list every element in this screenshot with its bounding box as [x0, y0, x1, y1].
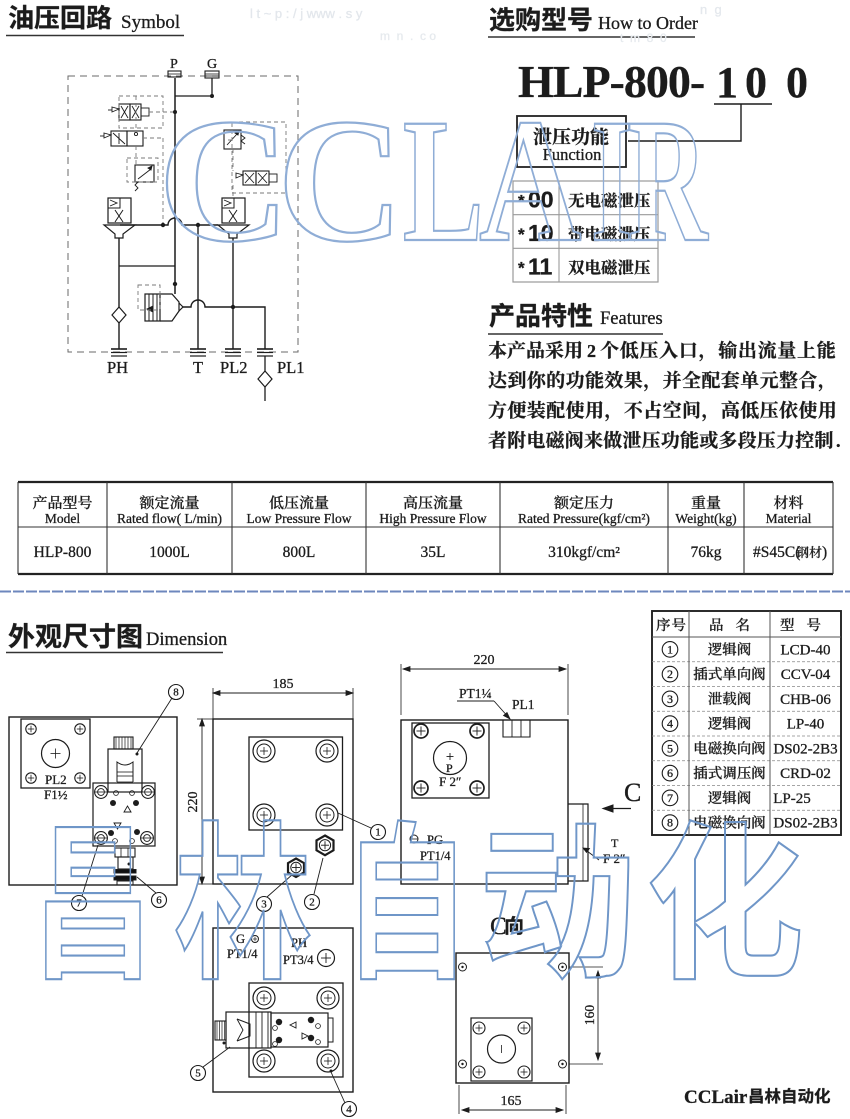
svg-text:How to Order: How to Order	[598, 13, 698, 33]
svg-text:): )	[822, 544, 827, 561]
svg-text:T: T	[193, 358, 203, 377]
svg-text:160: 160	[582, 1005, 597, 1026]
svg-text:G: G	[207, 57, 217, 72]
svg-text:Model: Model	[45, 511, 80, 526]
svg-text:PG: PG	[427, 833, 443, 847]
svg-text:1000L: 1000L	[149, 544, 189, 561]
svg-text:35L: 35L	[421, 544, 446, 561]
svg-text:8: 8	[667, 816, 673, 830]
svg-text:2: 2	[309, 897, 315, 909]
svg-text:Material: Material	[766, 511, 812, 526]
svg-text:High Pressure Flow: High Pressure Flow	[379, 511, 486, 526]
svg-text:PT1¼: PT1¼	[459, 686, 492, 701]
svg-text:165: 165	[501, 1094, 522, 1109]
svg-text:2: 2	[587, 341, 596, 361]
svg-text:PH: PH	[107, 358, 128, 377]
svg-text:220: 220	[474, 653, 495, 668]
svg-text:Dimension: Dimension	[146, 630, 227, 650]
svg-text:m n . c o: m n . c o	[380, 29, 436, 43]
svg-text:C: C	[624, 778, 641, 807]
svg-text:3: 3	[261, 899, 267, 911]
svg-text:Features: Features	[600, 309, 663, 329]
svg-text:T: T	[611, 836, 619, 850]
svg-text:PT1/4: PT1/4	[420, 849, 451, 863]
svg-text:8: 8	[173, 687, 179, 699]
svg-text:F1½: F1½	[44, 787, 68, 802]
svg-text:1: 1	[375, 827, 381, 839]
svg-text:P: P	[446, 761, 453, 775]
svg-text:310kgf/cm²: 310kgf/cm²	[548, 544, 620, 561]
svg-text:6: 6	[156, 895, 162, 907]
svg-text:6: 6	[667, 766, 673, 780]
svg-text:220: 220	[186, 792, 201, 813]
svg-text:CCV-04: CCV-04	[781, 667, 831, 683]
svg-text:DS02-2B3: DS02-2B3	[773, 741, 837, 757]
svg-text:5: 5	[667, 741, 673, 755]
svg-text:3: 3	[667, 692, 673, 706]
svg-text:A: A	[479, 82, 581, 279]
svg-text:F 2″: F 2″	[439, 774, 461, 789]
svg-text:0: 0	[786, 58, 808, 107]
svg-text:LCD-40: LCD-40	[781, 642, 831, 658]
svg-text:7: 7	[667, 791, 673, 805]
svg-text:LP-40: LP-40	[787, 717, 825, 733]
svg-text:LP-25: LP-25	[773, 791, 811, 807]
svg-text:76kg: 76kg	[691, 544, 722, 561]
svg-text:4: 4	[346, 1104, 352, 1116]
svg-text:.: .	[836, 431, 841, 451]
svg-text:PL2: PL2	[220, 358, 248, 377]
svg-text:PT3/4: PT3/4	[283, 953, 314, 967]
svg-text:Rated Pressure(kgf/cm²): Rated Pressure(kgf/cm²)	[518, 511, 650, 526]
svg-text:l t ~ p : / j www . s y: l t ~ p : / j www . s y	[250, 6, 363, 21]
svg-text:CCLair: CCLair	[684, 1087, 748, 1108]
svg-text:7: 7	[76, 898, 82, 910]
svg-text:R: R	[628, 81, 709, 278]
svg-text:Low Pressure Flow: Low Pressure Flow	[247, 511, 352, 526]
svg-text:Rated flow( L/min): Rated flow( L/min)	[117, 511, 222, 526]
svg-text:PT1/4: PT1/4	[227, 947, 258, 961]
svg-text:I: I	[591, 82, 632, 279]
svg-text:CHB-06: CHB-06	[780, 692, 831, 708]
svg-text:185: 185	[273, 677, 294, 692]
svg-text:G: G	[236, 932, 245, 946]
svg-text:0: 0	[745, 58, 767, 107]
svg-text:HLP-800: HLP-800	[34, 544, 92, 561]
svg-text:L: L	[403, 81, 484, 278]
svg-text:4: 4	[667, 717, 673, 731]
svg-text:CRD-02: CRD-02	[780, 766, 831, 782]
svg-text:t m 8 0: t m 8 0	[620, 31, 667, 45]
svg-text:PL2: PL2	[45, 772, 67, 787]
svg-text:5: 5	[195, 1068, 201, 1080]
svg-text:P: P	[170, 57, 178, 72]
svg-text:DS02-2B3: DS02-2B3	[773, 816, 837, 832]
svg-text:800L: 800L	[283, 544, 316, 561]
svg-text:1: 1	[716, 58, 738, 107]
svg-text:C: C	[277, 83, 403, 279]
svg-text:Weight(kg): Weight(kg)	[675, 511, 736, 526]
svg-text:PL1: PL1	[277, 358, 305, 377]
svg-text:n g: n g	[700, 2, 722, 17]
svg-text:1: 1	[667, 642, 673, 656]
svg-text:C: C	[158, 83, 290, 280]
svg-text:Symbol: Symbol	[121, 12, 180, 33]
svg-text:2: 2	[667, 667, 673, 681]
svg-text:#S45C(: #S45C(	[753, 544, 800, 561]
svg-text:PL1: PL1	[512, 697, 535, 712]
